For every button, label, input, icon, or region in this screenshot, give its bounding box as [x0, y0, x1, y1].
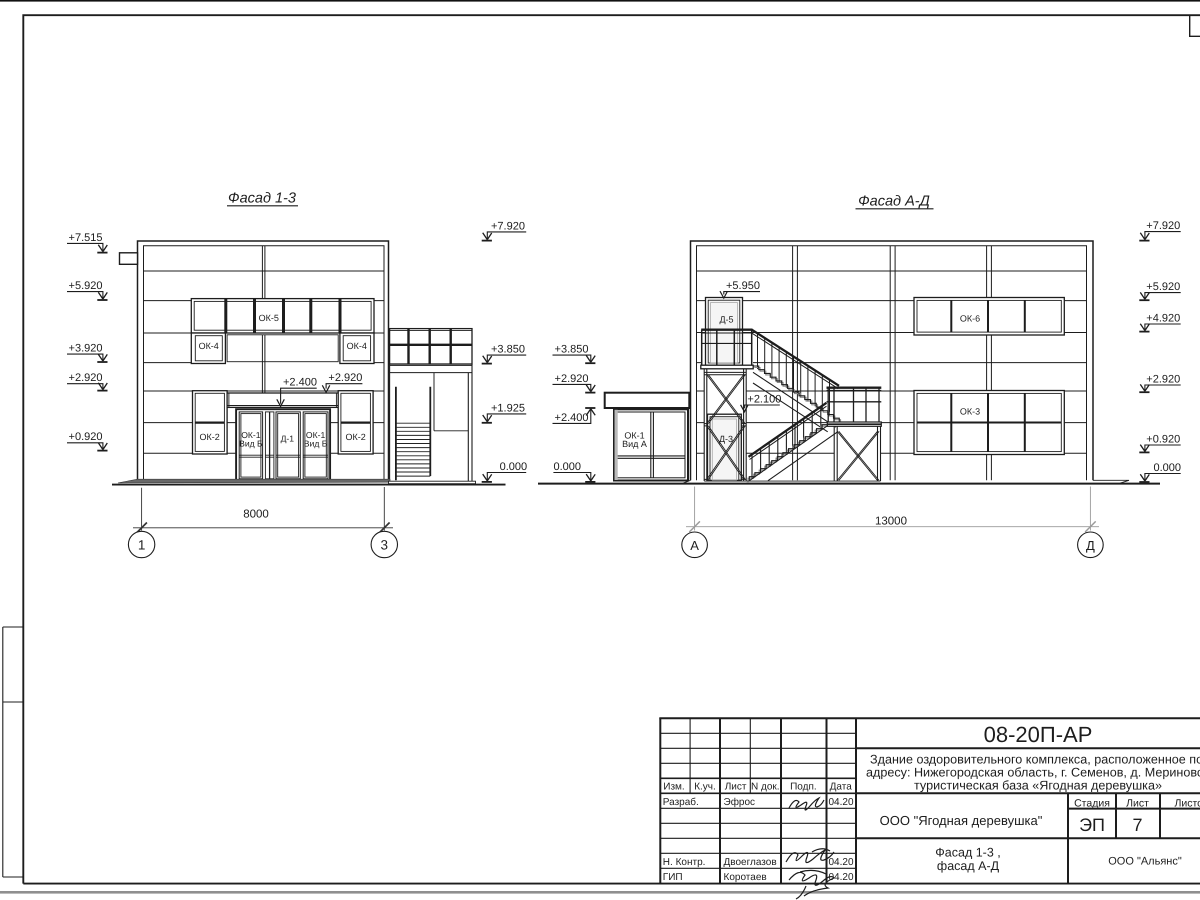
- svg-text:+2.920: +2.920: [1146, 373, 1180, 385]
- svg-text:Листов: Листов: [1174, 797, 1200, 809]
- svg-text:Д-1: Д-1: [281, 434, 295, 444]
- svg-text:+2.920: +2.920: [328, 372, 362, 384]
- svg-text:Фасад 1-3: Фасад 1-3: [228, 191, 296, 207]
- svg-text:+3.850: +3.850: [491, 344, 525, 356]
- svg-text:фасад А-Д: фасад А-Д: [937, 859, 1000, 873]
- svg-text:+5.920: +5.920: [1146, 281, 1180, 293]
- svg-text:+3.920: +3.920: [69, 343, 103, 355]
- svg-text:+2.400: +2.400: [555, 412, 589, 424]
- svg-text:3: 3: [381, 538, 389, 553]
- svg-text:А: А: [690, 538, 699, 553]
- svg-text:Д-5: Д-5: [719, 315, 733, 325]
- svg-text:Стадия: Стадия: [1074, 797, 1110, 809]
- svg-text:Вид Б: Вид Б: [304, 438, 328, 448]
- svg-text:0.000: 0.000: [500, 461, 528, 473]
- svg-text:Подп.: Подп.: [790, 782, 817, 793]
- svg-text:0.000: 0.000: [553, 461, 581, 473]
- svg-text:ООО "Ягодная деревушка": ООО "Ягодная деревушка": [880, 813, 1043, 828]
- svg-text:К.уч.: К.уч.: [694, 782, 716, 793]
- svg-text:+4.920: +4.920: [1146, 312, 1180, 324]
- svg-text:Дата: Дата: [830, 782, 853, 793]
- svg-text:+7.920: +7.920: [491, 220, 525, 232]
- svg-text:ООО "Альянс": ООО "Альянс": [1108, 856, 1182, 868]
- svg-text:ОК-2: ОК-2: [345, 432, 365, 442]
- svg-text:Здание оздоровительного компле: Здание оздоровительного комплекса, распо…: [870, 753, 1200, 767]
- svg-text:ОК-4: ОК-4: [347, 341, 367, 351]
- svg-text:ОК-4: ОК-4: [199, 341, 219, 351]
- svg-text:Эфрос: Эфрос: [724, 797, 756, 808]
- svg-text:08-20П-АР: 08-20П-АР: [984, 722, 1093, 747]
- svg-text:Лист: Лист: [725, 782, 747, 793]
- svg-text:+5.920: +5.920: [69, 280, 103, 292]
- svg-text:+1.925: +1.925: [491, 402, 525, 414]
- svg-text:ОК-3: ОК-3: [960, 406, 980, 416]
- svg-text:Разраб.: Разраб.: [663, 797, 699, 808]
- svg-text:туристическая база «Ягодная де: туристическая база «Ягодная деревушка»: [914, 779, 1162, 793]
- svg-text:Изм.: Изм.: [663, 782, 684, 793]
- svg-text:+7.515: +7.515: [69, 232, 103, 244]
- svg-text:+2.100: +2.100: [747, 393, 781, 405]
- svg-text:+2.920: +2.920: [555, 373, 589, 385]
- svg-text:ОК-2: ОК-2: [199, 432, 219, 442]
- svg-text:ЭП: ЭП: [1079, 815, 1105, 835]
- svg-text:адресу: Нижегородская область,: адресу: Нижегородская область, г. Семено…: [866, 766, 1200, 780]
- svg-text:Фасад 1-3 ,: Фасад 1-3 ,: [935, 845, 1000, 859]
- svg-text:ОК-6: ОК-6: [960, 313, 980, 323]
- svg-text:+3.850: +3.850: [555, 344, 589, 356]
- svg-text:Д: Д: [1086, 538, 1095, 553]
- svg-text:+0.920: +0.920: [1146, 433, 1180, 445]
- svg-text:Фасад А-Д: Фасад А-Д: [858, 194, 930, 210]
- svg-text:+2.920: +2.920: [69, 372, 103, 384]
- svg-text:N док.: N док.: [751, 782, 780, 793]
- svg-text:04.20: 04.20: [829, 857, 854, 868]
- svg-text:1: 1: [138, 538, 146, 553]
- svg-text:Д-3: Д-3: [719, 434, 733, 444]
- svg-text:+2.400: +2.400: [283, 377, 317, 389]
- svg-text:Лист: Лист: [1126, 797, 1149, 809]
- svg-text:+7.920: +7.920: [1146, 220, 1180, 232]
- svg-text:+0.920: +0.920: [69, 431, 103, 443]
- svg-text:Двоеглазов: Двоеглазов: [724, 857, 777, 868]
- svg-text:Н. Контр.: Н. Контр.: [663, 857, 706, 868]
- svg-text:13000: 13000: [875, 515, 907, 527]
- svg-text:0.000: 0.000: [1154, 462, 1182, 474]
- svg-text:Вид А: Вид А: [622, 439, 647, 449]
- svg-text:7: 7: [1132, 815, 1142, 835]
- svg-text:8000: 8000: [243, 509, 269, 521]
- svg-text:ГИП: ГИП: [663, 872, 683, 883]
- svg-text:04.20: 04.20: [829, 797, 854, 808]
- svg-text:Вид Б: Вид Б: [239, 438, 263, 448]
- svg-text:+5.950: +5.950: [726, 280, 760, 292]
- svg-text:ОК-5: ОК-5: [259, 313, 279, 323]
- svg-text:Коротаев: Коротаев: [724, 872, 767, 883]
